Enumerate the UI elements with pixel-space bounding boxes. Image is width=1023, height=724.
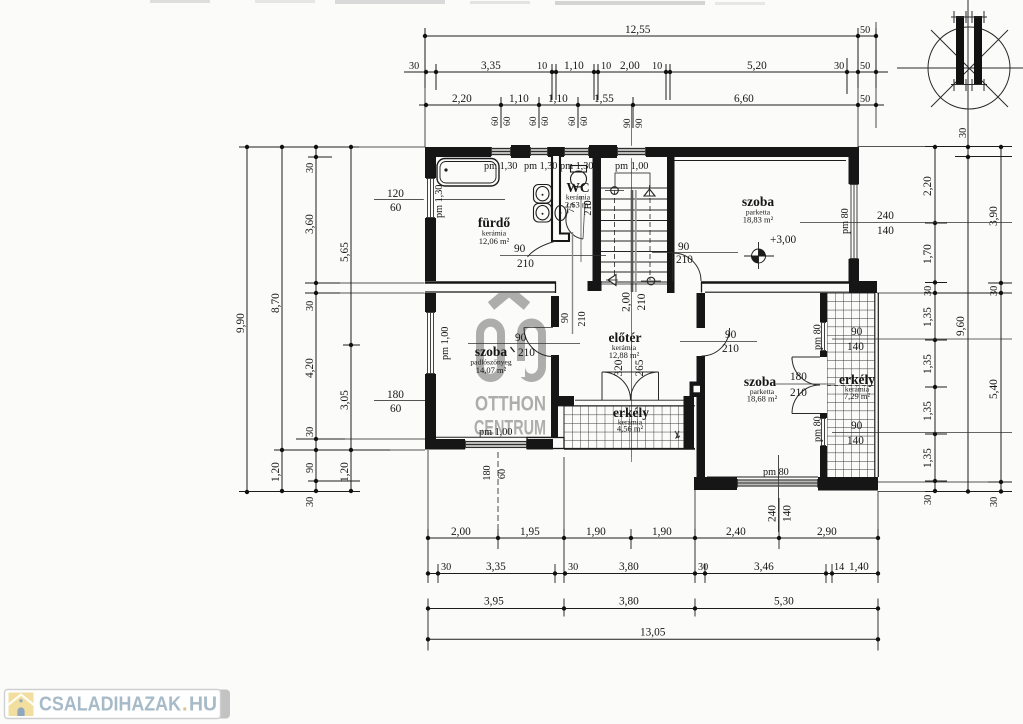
svg-text:90: 90 [514,243,526,255]
svg-text:pm 1,00: pm 1,00 [479,427,512,438]
svg-text:90: 90 [851,326,863,338]
svg-text:180: 180 [482,465,493,480]
svg-text:180: 180 [790,371,807,383]
svg-text:3,80: 3,80 [619,596,639,608]
svg-text:2,90: 2,90 [817,526,837,538]
svg-text:3,46: 3,46 [754,561,774,573]
svg-text:120: 120 [387,188,404,200]
svg-text:pm 1,30: pm 1,30 [484,161,517,172]
svg-text:240: 240 [767,505,779,522]
svg-text:90: 90 [560,313,571,323]
svg-text:210: 210 [636,293,648,310]
svg-text:14: 14 [834,562,844,573]
svg-text:3,90: 3,90 [988,206,1000,226]
svg-text:2,00: 2,00 [451,526,471,538]
svg-text:2,40: 2,40 [726,526,746,538]
svg-text:4,56 m²: 4,56 m² [617,424,644,434]
svg-text:60: 60 [529,116,539,126]
svg-text:7,29 m²: 7,29 m² [844,391,871,401]
svg-text:12,88 m²: 12,88 m² [609,350,640,360]
svg-text:30: 30 [958,128,969,138]
svg-text:50: 50 [860,61,870,72]
svg-text:210: 210 [583,200,594,215]
svg-text:.: . [182,694,188,716]
svg-text:210: 210 [676,254,693,266]
svg-text:30: 30 [305,301,316,311]
svg-text:50: 50 [860,25,870,36]
svg-text:140: 140 [847,341,864,353]
svg-text:pm 80: pm 80 [813,416,824,442]
svg-text:90: 90 [623,118,633,128]
svg-text:1,20: 1,20 [339,462,351,482]
svg-text:240: 240 [877,210,894,222]
svg-text:4,20: 4,20 [304,358,316,378]
svg-text:1,90: 1,90 [586,526,606,538]
svg-text:30: 30 [441,562,451,573]
svg-text:210: 210 [518,347,535,359]
svg-text:180: 180 [387,389,404,401]
svg-text:3,35: 3,35 [486,561,506,573]
svg-text:60: 60 [390,202,402,214]
svg-text:90: 90 [635,118,645,128]
svg-text:3,35: 3,35 [481,60,501,72]
svg-text:30: 30 [989,497,1000,507]
svg-text:30: 30 [305,497,316,507]
svg-text:30: 30 [989,286,1000,296]
svg-text:75: 75 [566,203,577,213]
svg-text:1,10: 1,10 [564,60,584,72]
svg-text:210: 210 [577,311,588,326]
svg-text:5,30: 5,30 [774,596,794,608]
svg-text:265: 265 [634,359,646,376]
svg-text:CSALADIHAZAK: CSALADIHAZAK [39,694,181,716]
svg-text:6,60: 6,60 [734,93,754,105]
svg-text:140: 140 [847,435,864,447]
svg-text:9,60: 9,60 [955,316,967,336]
svg-text:140: 140 [877,225,894,237]
svg-text:140: 140 [782,505,794,522]
svg-text:pm 1,30: pm 1,30 [434,185,445,218]
svg-text:3,95: 3,95 [484,596,504,608]
svg-text:2,00: 2,00 [621,292,633,312]
svg-text:pm 1,30: pm 1,30 [560,161,593,172]
svg-text:1,55: 1,55 [594,93,614,105]
svg-text:12,06 m²: 12,06 m² [479,236,510,246]
svg-text:90: 90 [725,329,737,341]
svg-text:90: 90 [515,332,527,344]
svg-text:320: 320 [613,359,625,376]
svg-text:60: 60 [390,403,402,415]
svg-text:5,40: 5,40 [988,379,1000,399]
svg-text:1,20: 1,20 [270,462,282,482]
svg-text:30: 30 [409,61,419,72]
svg-text:3,60: 3,60 [304,214,316,234]
svg-text:60: 60 [541,116,551,126]
svg-text:1,90: 1,90 [652,526,672,538]
svg-text:+3,00: +3,00 [770,234,796,246]
svg-text:12,55: 12,55 [625,24,651,36]
svg-text:2,00: 2,00 [620,60,640,72]
svg-text:210: 210 [790,387,807,399]
svg-text:1,70: 1,70 [922,244,934,264]
svg-text:pm 80: pm 80 [813,324,824,350]
svg-text:1,10: 1,10 [548,93,568,105]
svg-text:pm 1,30: pm 1,30 [524,161,557,172]
svg-text:60: 60 [491,116,501,126]
svg-text:210: 210 [722,343,739,355]
svg-text:60: 60 [580,116,590,126]
svg-text:14,07 m²: 14,07 m² [476,365,507,375]
svg-text:60: 60 [503,116,513,126]
svg-text:3,05: 3,05 [339,390,351,410]
svg-text:1,35: 1,35 [922,307,934,327]
svg-text:pm 80: pm 80 [840,208,851,234]
svg-text:90: 90 [678,241,690,253]
svg-text:13,05: 13,05 [640,627,666,639]
svg-text:pm 1,00: pm 1,00 [615,161,648,172]
svg-text:10: 10 [652,61,662,72]
svg-text:10: 10 [601,61,611,72]
svg-text:9,90: 9,90 [235,313,247,333]
svg-text:8,70: 8,70 [270,293,282,313]
svg-text:2,20: 2,20 [452,93,472,105]
svg-text:5,20: 5,20 [747,60,767,72]
svg-text:60: 60 [497,469,508,479]
svg-text:pm 80: pm 80 [763,467,789,478]
svg-text:1,35: 1,35 [922,401,934,421]
svg-text:10: 10 [537,61,547,72]
svg-text:30: 30 [923,495,934,505]
svg-text:90: 90 [305,463,316,473]
svg-text:30: 30 [923,286,934,296]
svg-text:50: 50 [860,94,870,105]
svg-text:1,35: 1,35 [922,354,934,374]
svg-text:210: 210 [517,258,534,270]
svg-text:pm 1,00: pm 1,00 [440,327,451,360]
svg-text:30: 30 [568,562,578,573]
svg-text:18,83 m²: 18,83 m² [743,215,774,225]
svg-text:30: 30 [305,163,316,173]
svg-text:2,20: 2,20 [922,176,934,196]
svg-text:1,35: 1,35 [922,448,934,468]
svg-text:90: 90 [851,420,863,432]
svg-text:30: 30 [698,562,708,573]
svg-text:5,65: 5,65 [339,242,351,262]
svg-text:1,95: 1,95 [520,526,540,538]
svg-text:1,40: 1,40 [849,561,869,573]
svg-text:OTTHON: OTTHON [475,393,546,416]
svg-text:1,10: 1,10 [509,93,529,105]
svg-text:HU: HU [189,694,217,716]
svg-text:3,80: 3,80 [619,561,639,573]
svg-text:60: 60 [568,116,578,126]
svg-text:18,68 m²: 18,68 m² [747,394,778,404]
svg-text:30: 30 [305,427,316,437]
svg-text:30: 30 [834,61,844,72]
